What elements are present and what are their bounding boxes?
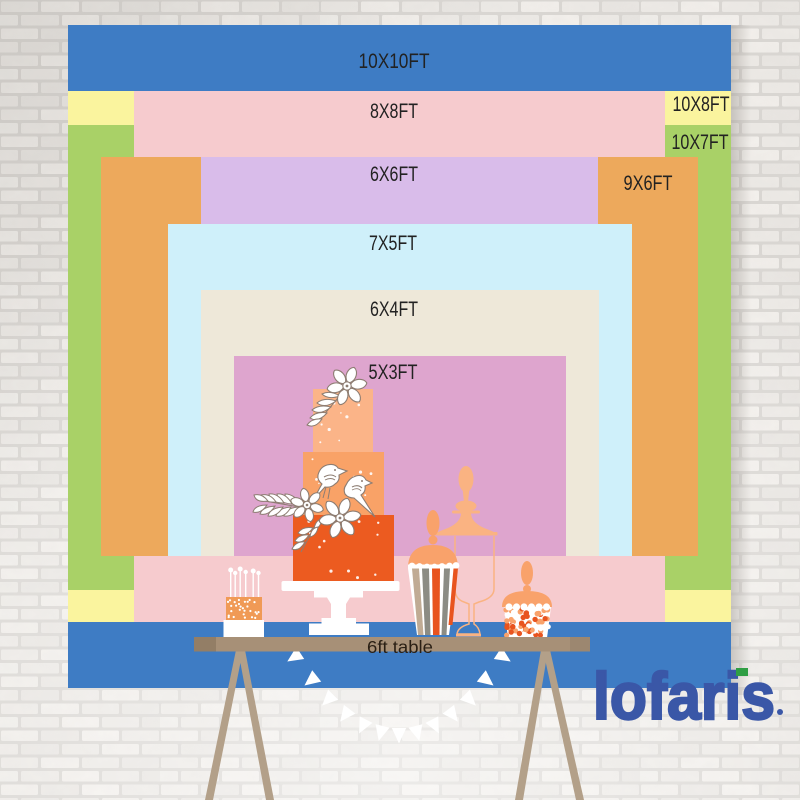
svg-text:8X8FT: 8X8FT xyxy=(370,100,418,123)
svg-text:10X7FT: 10X7FT xyxy=(672,131,729,154)
svg-text:7X5FT: 7X5FT xyxy=(369,232,417,255)
svg-text:6X6FT: 6X6FT xyxy=(370,163,418,186)
svg-text:10X10FT: 10X10FT xyxy=(359,50,430,73)
svg-text:6ft table: 6ft table xyxy=(367,637,433,657)
svg-text:10X8FT: 10X8FT xyxy=(673,93,730,116)
svg-text:5X3FT: 5X3FT xyxy=(369,361,418,384)
svg-text:6X4FT: 6X4FT xyxy=(370,298,418,321)
svg-text:9X6FT: 9X6FT xyxy=(624,172,673,195)
